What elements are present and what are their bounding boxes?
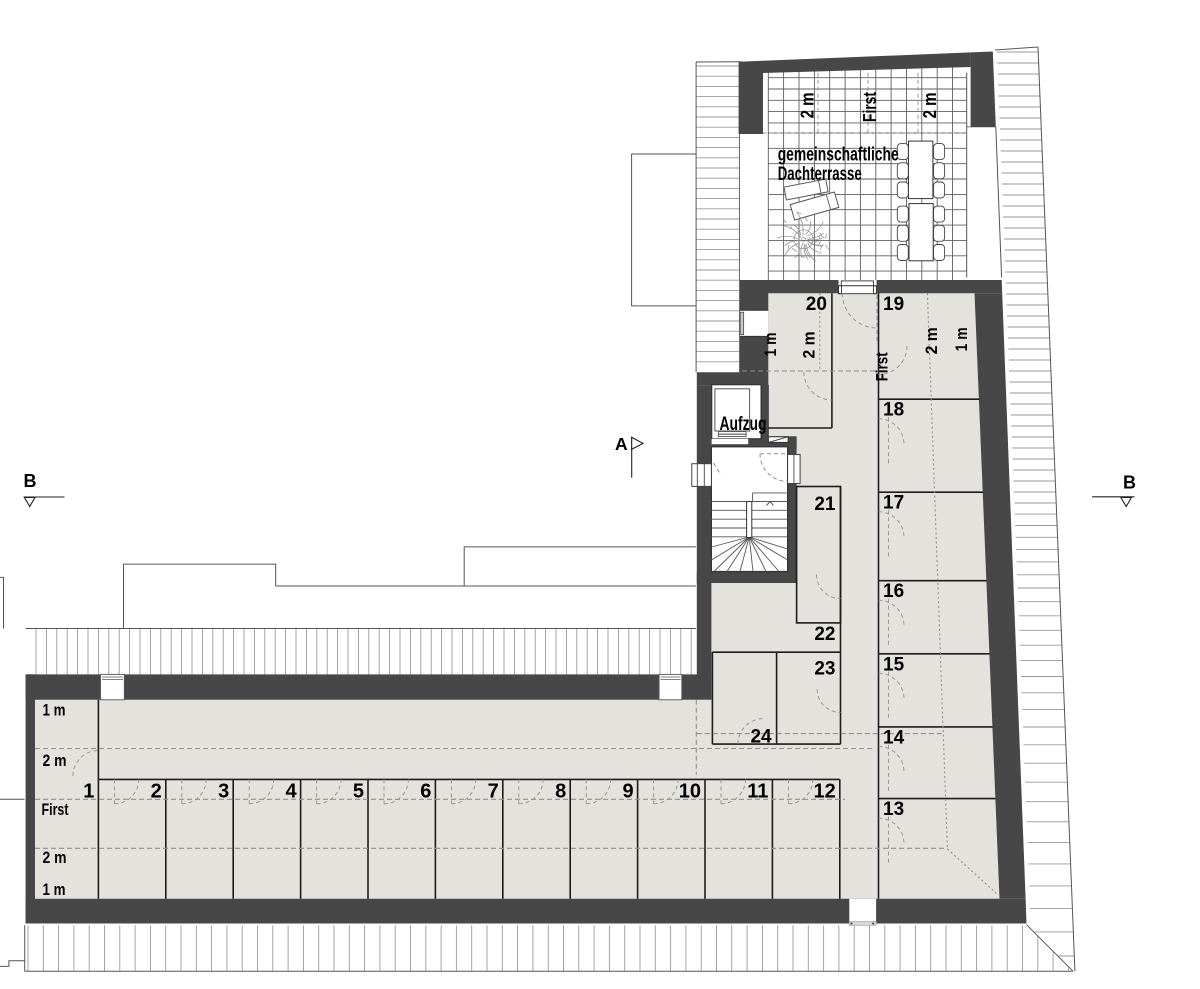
svg-text:24: 24 — [750, 727, 772, 748]
svg-text:18: 18 — [883, 400, 904, 421]
svg-text:21: 21 — [814, 494, 836, 515]
svg-text:20: 20 — [806, 294, 827, 315]
svg-text:16: 16 — [883, 581, 904, 602]
svg-text:2 m: 2 m — [797, 92, 817, 118]
svg-text:2 m: 2 m — [43, 848, 67, 867]
svg-text:First: First — [42, 800, 69, 819]
svg-text:3: 3 — [218, 781, 229, 803]
svg-text:B: B — [1123, 473, 1136, 493]
svg-text:gemeinschaftliche: gemeinschaftliche — [778, 145, 899, 166]
svg-text:Dachterrasse: Dachterrasse — [778, 164, 862, 185]
svg-text:17: 17 — [883, 493, 904, 514]
svg-text:15: 15 — [883, 654, 905, 675]
svg-text:First: First — [860, 92, 880, 122]
svg-text:4: 4 — [285, 781, 297, 803]
svg-text:10: 10 — [679, 781, 701, 803]
svg-text:First: First — [873, 352, 892, 381]
svg-text:Aufzug: Aufzug — [720, 414, 767, 435]
svg-text:8: 8 — [555, 781, 566, 803]
svg-text:11: 11 — [747, 781, 768, 803]
svg-text:2 m: 2 m — [799, 332, 818, 359]
svg-text:A: A — [615, 434, 628, 454]
svg-text:1: 1 — [83, 781, 94, 803]
svg-text:1 m: 1 m — [952, 327, 971, 351]
svg-text:22: 22 — [814, 624, 835, 645]
svg-text:23: 23 — [814, 659, 835, 680]
svg-text:1 m: 1 m — [43, 701, 66, 720]
svg-text:6: 6 — [420, 781, 431, 803]
svg-text:14: 14 — [883, 727, 905, 748]
svg-text:19: 19 — [883, 294, 904, 315]
svg-text:2 m: 2 m — [43, 751, 67, 770]
svg-text:1 m: 1 m — [761, 333, 780, 357]
svg-text:2: 2 — [151, 781, 162, 803]
svg-text:2 m: 2 m — [920, 92, 940, 118]
svg-text:12: 12 — [814, 781, 836, 803]
svg-text:7: 7 — [488, 781, 499, 803]
svg-text:9: 9 — [622, 781, 633, 803]
svg-text:13: 13 — [883, 799, 904, 820]
svg-text:2 m: 2 m — [922, 327, 941, 354]
svg-text:5: 5 — [353, 781, 364, 803]
svg-text:B: B — [24, 471, 37, 491]
svg-text:1 m: 1 m — [43, 880, 66, 899]
